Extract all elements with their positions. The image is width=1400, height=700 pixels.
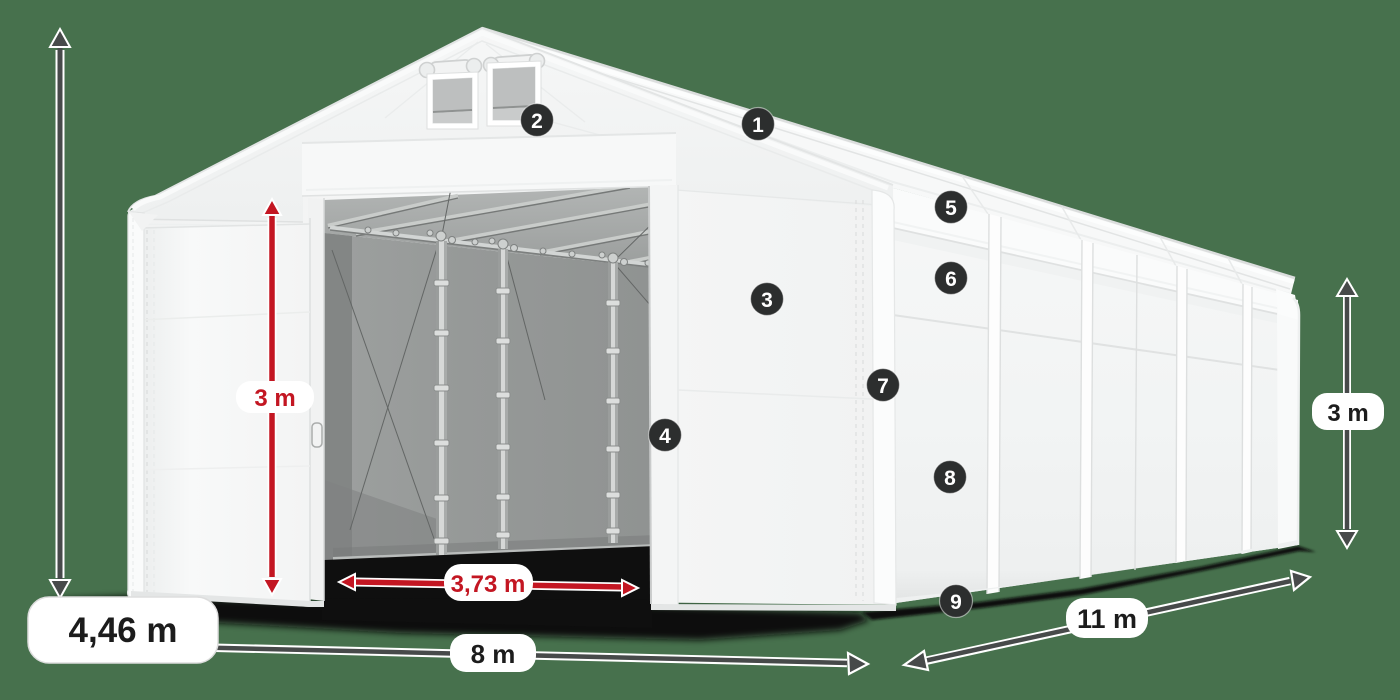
svg-text:1: 1 — [752, 114, 764, 137]
svg-text:8: 8 — [944, 467, 956, 490]
svg-text:3 m: 3 m — [1327, 400, 1368, 427]
svg-text:7: 7 — [877, 375, 889, 398]
svg-text:3,73 m: 3,73 m — [451, 571, 526, 598]
svg-text:6: 6 — [945, 268, 957, 291]
svg-text:11 m: 11 m — [1077, 604, 1137, 634]
svg-text:9: 9 — [950, 591, 962, 614]
svg-text:5: 5 — [945, 197, 957, 220]
svg-text:3: 3 — [761, 289, 773, 312]
svg-text:4,46 m: 4,46 m — [69, 611, 178, 650]
svg-text:3 m: 3 m — [254, 385, 295, 412]
svg-text:4: 4 — [659, 425, 671, 448]
svg-text:8 m: 8 m — [471, 639, 516, 669]
svg-text:2: 2 — [531, 110, 543, 133]
